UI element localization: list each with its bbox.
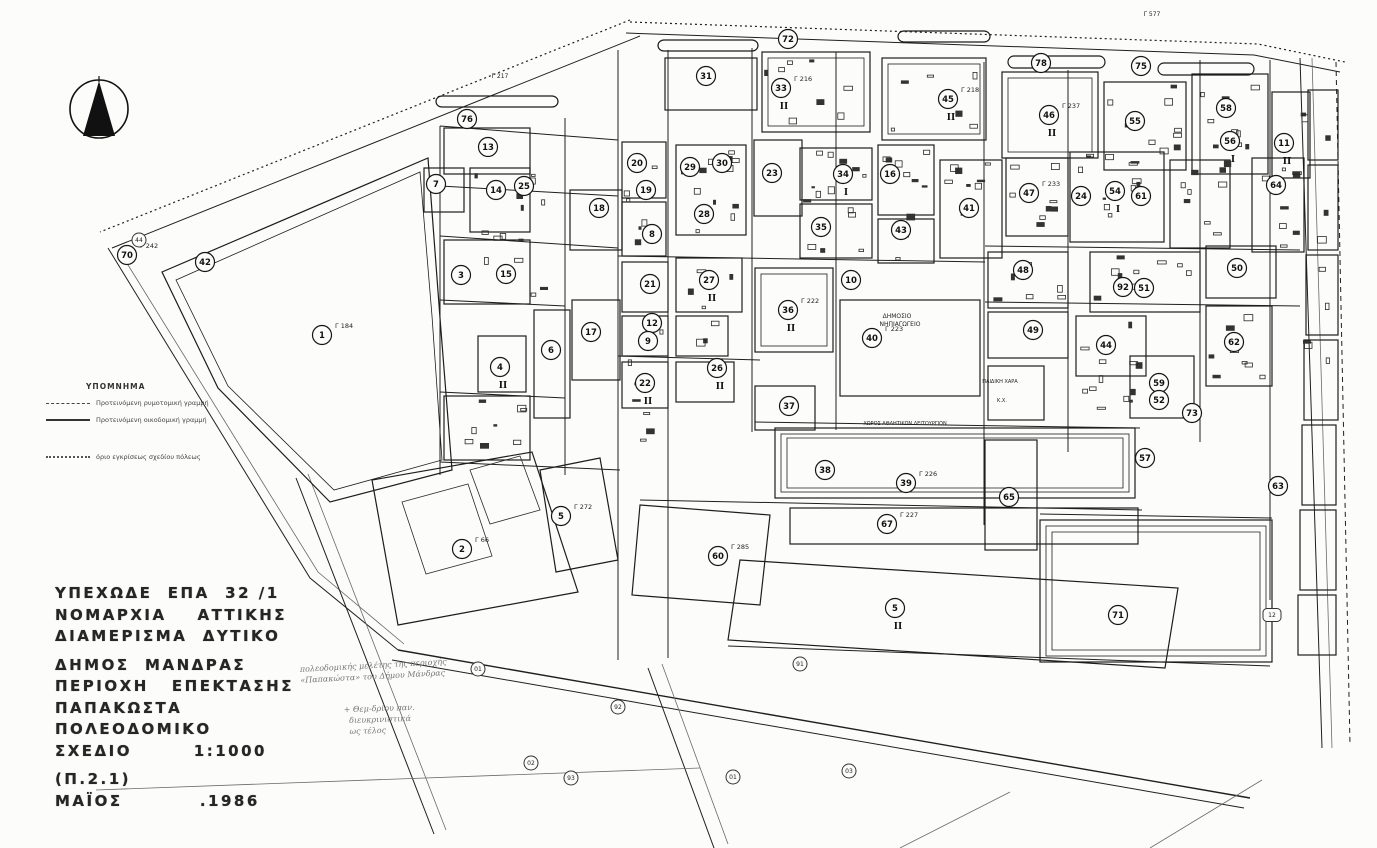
building-footprint bbox=[1201, 92, 1205, 96]
road-line bbox=[440, 236, 618, 248]
road-line bbox=[626, 33, 1340, 72]
svg-text:II: II bbox=[708, 294, 716, 304]
block-number-circle-38: 38 bbox=[816, 461, 835, 480]
building-footprint bbox=[1280, 224, 1287, 229]
block-number-circle-30: 30 bbox=[713, 154, 732, 173]
building-footprint bbox=[1117, 255, 1125, 259]
svg-text:23: 23 bbox=[766, 169, 778, 179]
block-number-circle-41: 41 bbox=[960, 199, 979, 218]
map-polygon bbox=[1052, 532, 1260, 650]
block-number-circle-12: 12 bbox=[643, 314, 662, 333]
svg-text:61: 61 bbox=[1135, 192, 1147, 202]
block-number-circle-35: 35 bbox=[812, 218, 831, 237]
block-number-circle-78: 78 bbox=[1032, 54, 1051, 73]
svg-text:62: 62 bbox=[1228, 338, 1240, 348]
svg-text:3: 3 bbox=[458, 271, 464, 281]
svg-text:50: 50 bbox=[1231, 264, 1243, 274]
svg-text:45: 45 bbox=[942, 95, 954, 105]
building-footprint bbox=[1050, 201, 1057, 203]
building-footprint bbox=[924, 150, 930, 154]
road-line bbox=[618, 356, 760, 360]
block-number-circle-25: 25 bbox=[515, 177, 534, 196]
block-number-circle-57: 57 bbox=[1136, 449, 1155, 468]
svg-text:24: 24 bbox=[1075, 192, 1087, 202]
building-footprint bbox=[702, 306, 705, 309]
building-footprint bbox=[729, 151, 735, 154]
road-line bbox=[100, 20, 630, 232]
building-footprint bbox=[1079, 167, 1083, 173]
control-point-44: 44 bbox=[132, 233, 146, 247]
building-footprint bbox=[1184, 199, 1191, 203]
map-label: ΠΑΙΔΙΚΗ ΧΑΡΑ bbox=[982, 379, 1018, 385]
svg-text:57: 57 bbox=[1139, 454, 1151, 464]
block-number-circle-55: 55 bbox=[1126, 112, 1145, 131]
legend-item-building-line: Προτεινόμενη οικοδομική γραμμή bbox=[46, 416, 246, 424]
city-block-inner bbox=[888, 64, 980, 134]
svg-text:Γ 226: Γ 226 bbox=[919, 470, 937, 478]
svg-text:67: 67 bbox=[881, 520, 893, 530]
title-block-line: ΝΟΜΑΡΧΙΑ ΑΤΤΙΚΗΣ bbox=[55, 605, 323, 627]
building-footprint bbox=[1208, 119, 1214, 122]
block-number-circle-23: 23 bbox=[763, 164, 782, 183]
road-line bbox=[112, 36, 640, 248]
building-footprint bbox=[1171, 85, 1177, 89]
building-footprint bbox=[809, 59, 814, 62]
building-footprint bbox=[542, 200, 545, 205]
block-number-circle-17: 17 bbox=[582, 323, 601, 342]
svg-text:60: 60 bbox=[712, 552, 724, 562]
map-label: ΧΩΡΟΣ ΑΘΛΗΤΙΚΩΝ ΛΕΙΤΟΥΡΓΙΩΝ bbox=[863, 421, 947, 427]
building-footprint bbox=[973, 72, 977, 79]
city-block bbox=[1300, 510, 1336, 590]
building-footprint bbox=[465, 439, 473, 443]
svg-text:Γ 222: Γ 222 bbox=[801, 297, 819, 305]
road-line bbox=[900, 792, 1010, 848]
block-number-circle-5: 5II bbox=[886, 599, 905, 633]
svg-text:72: 72 bbox=[782, 35, 794, 45]
svg-text:Γ 66: Γ 66 bbox=[475, 536, 489, 544]
building-footprint bbox=[1260, 375, 1265, 379]
building-footprint bbox=[787, 61, 792, 65]
svg-text:52: 52 bbox=[1153, 396, 1165, 406]
building-footprint bbox=[641, 439, 647, 441]
svg-text:75: 75 bbox=[1135, 62, 1147, 72]
building-footprint bbox=[1083, 389, 1088, 393]
svg-text:28: 28 bbox=[698, 210, 710, 220]
building-footprint bbox=[1094, 296, 1102, 301]
legend-item-street-line: Προτεινόμενη ρυμοτομική γραμμή bbox=[46, 399, 246, 407]
svg-text:II: II bbox=[894, 622, 902, 632]
block-number-circle-40: 40Γ 223 bbox=[863, 325, 904, 348]
thick-line-icon bbox=[46, 419, 90, 421]
building-footprint bbox=[1178, 264, 1183, 267]
building-footprint bbox=[642, 220, 647, 226]
road-median-strip bbox=[658, 40, 758, 51]
city-block bbox=[882, 58, 986, 140]
building-footprint bbox=[1245, 144, 1249, 149]
svg-text:39: 39 bbox=[900, 479, 912, 489]
control-point-03: 03 bbox=[842, 764, 856, 778]
building-footprint bbox=[970, 124, 978, 128]
title-block-line: ΣΧΕΔΙΟ 1:1000 bbox=[55, 741, 323, 763]
block-number-circle-43: 43 bbox=[892, 221, 911, 240]
building-footprint bbox=[713, 200, 716, 205]
building-footprint bbox=[1325, 303, 1329, 309]
svg-text:17: 17 bbox=[585, 328, 597, 338]
dotted-line-icon bbox=[46, 456, 90, 458]
block-number-circle-2: 2Γ 66 bbox=[453, 536, 489, 559]
building-footprint bbox=[764, 70, 768, 76]
svg-text:71: 71 bbox=[1112, 611, 1124, 621]
svg-text:92: 92 bbox=[614, 704, 622, 711]
svg-text:64: 64 bbox=[1270, 181, 1282, 191]
building-footprint bbox=[1188, 190, 1191, 195]
building-footprint bbox=[1226, 325, 1235, 330]
building-footprint bbox=[493, 424, 497, 426]
building-footprint bbox=[1280, 206, 1289, 209]
map-label: ΔΗΜΟΣΙΟ bbox=[883, 313, 912, 320]
svg-text:49: 49 bbox=[1027, 326, 1039, 336]
svg-text:25: 25 bbox=[518, 182, 530, 192]
svg-text:II: II bbox=[644, 397, 652, 407]
road-line bbox=[618, 256, 985, 262]
building-footprint bbox=[1318, 237, 1327, 244]
title-block-line: ΠΕΡΙΟΧΗ ΕΠΕΚΤΑΣΗΣ bbox=[55, 676, 323, 698]
svg-text:78: 78 bbox=[1035, 59, 1047, 69]
block-number-circle-75: 75 bbox=[1132, 57, 1151, 76]
block-number-circle-63: 63 bbox=[1269, 477, 1288, 496]
svg-text:2: 2 bbox=[459, 545, 465, 555]
city-block bbox=[1040, 520, 1272, 662]
legend-heading: ΥΠΟΜΝΗΜΑ bbox=[86, 382, 246, 391]
svg-text:II: II bbox=[787, 324, 795, 334]
building-footprint bbox=[1128, 322, 1132, 329]
building-footprint bbox=[966, 184, 971, 187]
building-footprint bbox=[901, 80, 909, 83]
control-point-91: 91 bbox=[793, 657, 807, 671]
svg-text:Γ 272: Γ 272 bbox=[574, 503, 592, 511]
city-block bbox=[676, 316, 728, 356]
building-footprint bbox=[1213, 145, 1219, 149]
building-footprint bbox=[1134, 270, 1139, 274]
legend-item-approval-boundary: όριο εγκρίσεως σχεδίου πόλεως bbox=[46, 453, 246, 461]
svg-text:31: 31 bbox=[700, 72, 712, 82]
building-footprint bbox=[1130, 389, 1136, 395]
svg-text:38: 38 bbox=[819, 466, 831, 476]
building-footprint bbox=[518, 239, 523, 242]
building-footprint bbox=[1165, 99, 1173, 106]
building-footprint bbox=[838, 113, 844, 119]
svg-text:II: II bbox=[780, 102, 788, 112]
svg-text:41: 41 bbox=[963, 204, 975, 214]
svg-text:15: 15 bbox=[500, 270, 512, 280]
block-number-circle-52: 52 bbox=[1150, 391, 1169, 410]
city-block bbox=[1308, 90, 1338, 160]
map-label: ΝΗΠΙΑΓΩΓΕΙΟ bbox=[880, 321, 921, 328]
block-number-circle-29: 29 bbox=[681, 158, 700, 177]
block-number-circle-10: 10 bbox=[842, 271, 861, 290]
legend: ΥΠΟΜΝΗΜΑ Προτεινόμενη ρυμοτομική γραμμή … bbox=[46, 382, 246, 470]
building-footprint bbox=[1104, 204, 1109, 209]
svg-text:7: 7 bbox=[433, 180, 439, 190]
building-footprint bbox=[1046, 206, 1052, 212]
block-number-circle-7: 7 bbox=[427, 175, 446, 194]
building-footprint bbox=[1136, 362, 1143, 369]
svg-text:42: 42 bbox=[199, 258, 211, 268]
svg-text:12: 12 bbox=[646, 319, 658, 329]
block-number-circle-67: 67Γ 227 bbox=[878, 511, 919, 534]
svg-text:36: 36 bbox=[782, 306, 794, 316]
block-number-circle-58: 58 bbox=[1217, 99, 1236, 118]
block-number-circle-11: 11II bbox=[1275, 134, 1294, 168]
block-number-circle-36: 36Γ 222II bbox=[779, 297, 820, 334]
block-number-circle-50: 50 bbox=[1228, 259, 1247, 278]
building-footprint bbox=[1213, 233, 1221, 235]
building-footprint bbox=[628, 360, 631, 366]
svg-text:51: 51 bbox=[1138, 284, 1150, 294]
control-point-02: 02 bbox=[524, 756, 538, 770]
svg-text:73: 73 bbox=[1186, 409, 1198, 419]
building-footprint bbox=[1326, 358, 1329, 364]
building-footprint bbox=[731, 214, 735, 221]
block-number-circle-19: 19 bbox=[637, 181, 656, 200]
building-footprint bbox=[820, 248, 825, 253]
building-footprint bbox=[1218, 182, 1226, 187]
building-footprint bbox=[644, 412, 650, 414]
svg-text:13: 13 bbox=[482, 143, 494, 153]
svg-text:43: 43 bbox=[895, 226, 907, 236]
building-footprint bbox=[729, 274, 733, 280]
north-arrow-icon bbox=[64, 72, 134, 142]
svg-text:I: I bbox=[844, 188, 848, 198]
building-footprint bbox=[906, 214, 915, 221]
svg-text:35: 35 bbox=[815, 223, 827, 233]
building-footprint bbox=[1106, 154, 1114, 159]
map-label: Κ.Χ. bbox=[997, 398, 1007, 404]
svg-text:46: 46 bbox=[1043, 111, 1055, 121]
building-footprint bbox=[955, 111, 962, 117]
svg-text:03: 03 bbox=[845, 768, 853, 775]
building-footprint bbox=[515, 258, 523, 262]
building-footprint bbox=[1026, 295, 1033, 299]
building-footprint bbox=[1099, 360, 1106, 364]
building-footprint bbox=[624, 191, 629, 196]
building-footprint bbox=[1244, 315, 1253, 321]
building-footprint bbox=[808, 244, 816, 249]
title-block-line: ΥΠΕΧΩΔΕ ΕΠΑ 32 /1 bbox=[55, 583, 323, 605]
svg-text:56: 56 bbox=[1224, 137, 1236, 147]
road-line bbox=[630, 22, 1345, 62]
building-footprint bbox=[1186, 271, 1191, 276]
building-footprint bbox=[1040, 216, 1046, 220]
svg-text:70: 70 bbox=[121, 251, 133, 261]
building-footprint bbox=[927, 75, 933, 77]
svg-text:I: I bbox=[1231, 155, 1235, 165]
block-number-circle-27: 27II bbox=[700, 271, 719, 305]
svg-text:22: 22 bbox=[639, 379, 651, 389]
road-line bbox=[440, 300, 565, 306]
block-number-circle-42: 42 bbox=[196, 253, 215, 272]
svg-text:76: 76 bbox=[461, 115, 473, 125]
block-number-circle-24: 24 bbox=[1072, 187, 1091, 206]
svg-text:10: 10 bbox=[845, 276, 857, 286]
building-footprint bbox=[1181, 183, 1185, 188]
city-block bbox=[1104, 82, 1186, 170]
block-number-circle-64: 64 bbox=[1267, 176, 1286, 195]
lozenge-marker-12: 12 bbox=[1263, 609, 1281, 622]
svg-text:27: 27 bbox=[703, 276, 715, 286]
block-number-circle-16: 16 bbox=[881, 165, 900, 184]
city-block bbox=[444, 396, 530, 460]
block-number-circle-33: 33Γ 216II bbox=[772, 75, 813, 112]
svg-text:Γ 184: Γ 184 bbox=[335, 322, 353, 330]
building-footprint bbox=[1324, 210, 1329, 216]
block-number-circle-59: 59 bbox=[1150, 374, 1169, 393]
building-footprint bbox=[789, 118, 797, 124]
block-number-circle-65: 65 bbox=[1000, 488, 1019, 507]
building-footprint bbox=[817, 151, 823, 155]
block-number-circle-45: 45Γ 218II bbox=[939, 86, 980, 123]
control-point-01: 01 bbox=[726, 770, 740, 784]
building-footprint bbox=[859, 249, 864, 251]
building-footprint bbox=[1325, 135, 1330, 141]
svg-text:9: 9 bbox=[645, 337, 651, 347]
building-footprint bbox=[993, 297, 1002, 301]
building-footprint bbox=[635, 239, 641, 245]
title-block: ΥΠΕΧΩΔΕ ΕΠΑ 32 /1ΝΟΜΑΡΧΙΑ ΑΤΤΙΚΗΣΔΙΑΜΕΡΙ… bbox=[55, 583, 323, 812]
svg-text:Γ 233: Γ 233 bbox=[1042, 180, 1060, 188]
building-footprint bbox=[627, 199, 630, 202]
building-footprint bbox=[863, 174, 866, 177]
building-footprint bbox=[540, 287, 548, 290]
svg-text:29: 29 bbox=[684, 163, 696, 173]
building-footprint bbox=[1251, 85, 1259, 90]
svg-text:58: 58 bbox=[1220, 104, 1232, 114]
svg-text:Γ 216: Γ 216 bbox=[794, 75, 812, 83]
block-number-circle-61: 61 bbox=[1132, 187, 1151, 206]
building-footprint bbox=[828, 187, 834, 194]
svg-text:Γ 237: Γ 237 bbox=[1062, 102, 1080, 110]
building-footprint bbox=[1090, 387, 1097, 391]
block-number-circle-92: 92 bbox=[1114, 278, 1133, 297]
map-polygon bbox=[632, 505, 770, 605]
title-block-line: ΠΟΛΕΟΔΟΜΙΚΟ bbox=[55, 719, 323, 741]
building-footprint bbox=[896, 258, 900, 261]
svg-text:30: 30 bbox=[716, 159, 728, 169]
building-footprint bbox=[816, 191, 820, 197]
building-footprint bbox=[480, 443, 489, 449]
building-footprint bbox=[1213, 375, 1221, 379]
svg-text:44: 44 bbox=[1100, 341, 1112, 351]
road-line bbox=[1312, 58, 1332, 748]
building-footprint bbox=[479, 400, 486, 403]
building-footprint bbox=[1174, 145, 1181, 151]
svg-text:63: 63 bbox=[1272, 482, 1284, 492]
block-number-circle-49: 49 bbox=[1024, 321, 1043, 340]
building-footprint bbox=[1036, 222, 1044, 227]
map-label: Γ 577 bbox=[1144, 11, 1161, 18]
svg-text:59: 59 bbox=[1153, 379, 1165, 389]
building-footprint bbox=[1319, 267, 1325, 271]
handwritten-note-2: + Θεμ-δρίου παν. διευκρινιστικά ως τέλος bbox=[343, 702, 415, 737]
road-line bbox=[398, 650, 1250, 798]
building-footprint bbox=[812, 186, 815, 188]
building-footprint bbox=[475, 173, 478, 178]
building-footprint bbox=[1149, 140, 1155, 144]
map-label: Γ 217 bbox=[492, 73, 509, 80]
building-footprint bbox=[803, 199, 811, 202]
road-median-strip bbox=[1158, 63, 1254, 75]
svg-text:21: 21 bbox=[644, 280, 656, 290]
svg-text:55: 55 bbox=[1129, 117, 1141, 127]
block-number-circle-28: 28 bbox=[695, 205, 714, 224]
building-footprint bbox=[828, 152, 833, 157]
building-footprint bbox=[531, 293, 536, 296]
svg-text:14: 14 bbox=[490, 186, 502, 196]
svg-text:65: 65 bbox=[1003, 493, 1015, 503]
building-footprint bbox=[1108, 214, 1112, 217]
building-footprint bbox=[1051, 163, 1059, 169]
building-footprint bbox=[891, 128, 894, 131]
block-number-circle-3: 3 bbox=[452, 266, 471, 285]
road-line bbox=[440, 392, 565, 398]
svg-text:19: 19 bbox=[640, 186, 652, 196]
building-footprint bbox=[688, 289, 694, 295]
building-footprint bbox=[985, 163, 990, 165]
title-block-line: (Π.2.1) bbox=[55, 769, 323, 791]
svg-text:1: 1 bbox=[319, 331, 325, 341]
svg-text:47: 47 bbox=[1023, 189, 1035, 199]
block-number-circle-44: 44 bbox=[1097, 336, 1116, 355]
road-line bbox=[985, 246, 1300, 250]
block-number-circle-6: 6 bbox=[542, 341, 561, 360]
block-number-circle-31: 31 bbox=[697, 67, 716, 86]
svg-text:6: 6 bbox=[548, 346, 554, 356]
building-footprint bbox=[1280, 245, 1287, 247]
svg-text:11: 11 bbox=[1278, 139, 1290, 149]
building-footprint bbox=[699, 168, 706, 173]
building-footprint bbox=[977, 180, 985, 182]
block-number-circle-39: 39Γ 226 bbox=[897, 470, 938, 493]
block-number-circle-5: 5Γ 272 bbox=[552, 503, 593, 526]
svg-text:01: 01 bbox=[474, 666, 482, 673]
building-footprint bbox=[532, 174, 536, 176]
road-median-strip bbox=[436, 96, 558, 107]
block-number-circle-60: 60Γ 285 bbox=[709, 543, 750, 566]
building-footprint bbox=[1124, 396, 1129, 401]
svg-text:33: 33 bbox=[775, 84, 787, 94]
svg-text:5: 5 bbox=[558, 512, 564, 522]
svg-text:4: 4 bbox=[497, 363, 503, 373]
svg-text:8: 8 bbox=[649, 230, 655, 240]
svg-text:01: 01 bbox=[729, 774, 737, 781]
block-number-circle-9: 9 bbox=[639, 332, 658, 351]
block-number-circle-62: 62 bbox=[1225, 333, 1244, 352]
block-number-circle-37: 37 bbox=[780, 397, 799, 416]
svg-text:Γ 227: Γ 227 bbox=[900, 511, 918, 519]
building-footprint bbox=[514, 440, 521, 444]
road-median-strip bbox=[898, 31, 990, 42]
building-footprint bbox=[844, 86, 853, 90]
building-footprint bbox=[1209, 354, 1215, 358]
block-number-circle-46: 46Γ 237II bbox=[1040, 102, 1081, 139]
block-number-circle-47: 47Γ 233 bbox=[1020, 180, 1061, 203]
building-footprint bbox=[1220, 167, 1227, 173]
block-number-circle-1: 1Γ 184 bbox=[313, 322, 354, 345]
building-footprint bbox=[660, 330, 663, 334]
block-number-circle-15: 15 bbox=[497, 265, 516, 284]
svg-text:II: II bbox=[947, 113, 955, 123]
